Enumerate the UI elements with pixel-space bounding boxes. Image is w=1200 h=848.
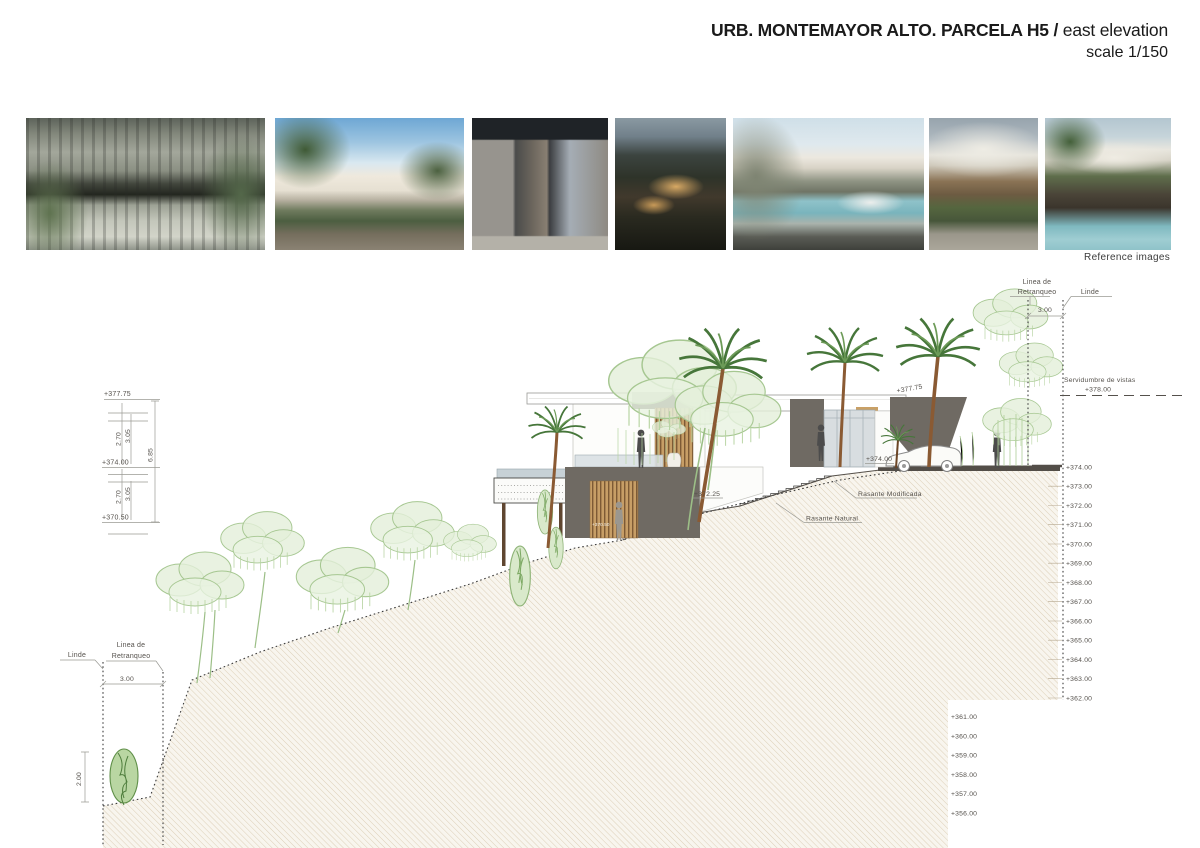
scale-label: +371.00	[1066, 522, 1092, 529]
label-mid-level: +374.00	[102, 460, 129, 467]
scale-label: +373.00	[1066, 484, 1092, 491]
dim-upper-floor: 3.05	[125, 429, 132, 443]
sketch-tree	[221, 512, 305, 571]
dim-upper-clear: 2.70	[116, 432, 123, 446]
scale-label: +366.00	[1066, 619, 1092, 626]
label-lower-level: +370.50	[592, 522, 610, 528]
dim-lower-clear: 2.70	[116, 490, 123, 504]
label-linde-bottom: Linde	[68, 652, 86, 659]
label-rasante-modificada: Rasante Modificada	[858, 491, 922, 498]
label-mid-spot: +372.25	[694, 491, 720, 498]
elevation-sheet: URB. MONTEMAYOR ALTO. PARCELA H5 / east …	[0, 0, 1200, 848]
scale-label: +370.00	[1066, 542, 1092, 549]
dim-setback-bottom: 3.00	[120, 676, 134, 683]
left-dimension-stack: +377.75 2.70 3.05 +374.00 2.70 3.05 +370…	[102, 391, 160, 534]
dim-setback: 3.00	[1038, 307, 1052, 314]
label-rasante-natural: Rasante Natural	[806, 516, 858, 523]
elevation-drawing: +370.50	[0, 0, 1200, 848]
label-linea-de: Linea de	[1023, 279, 1051, 286]
label-low-level: +370.50	[102, 515, 129, 522]
cypress-bush	[110, 749, 138, 805]
label-retranqueo-bottom: Retranqueo	[112, 653, 151, 660]
lower-scale-panel	[948, 700, 1200, 848]
sketch-tree	[296, 547, 388, 612]
label-retranqueo: Retranqueo	[1018, 289, 1057, 296]
scale-label: +374.00	[1066, 465, 1092, 472]
dim-total-height: 6.85	[148, 448, 155, 462]
servidumbre-annotation: Servidumbre de vistas +378.00	[1060, 377, 1188, 396]
sketch-tree	[156, 552, 244, 614]
boundary-shrub	[973, 289, 1048, 342]
boundary-shrub	[999, 343, 1062, 388]
label-entry-spot: +374.00	[866, 456, 892, 463]
scale-label: +369.00	[1066, 561, 1092, 568]
scale-label: +357.00	[951, 791, 977, 798]
lower-wood-slat-door	[590, 481, 638, 538]
scale-label: +364.00	[1066, 657, 1092, 664]
dim-lower-floor: 3.05	[125, 487, 132, 501]
label-servidumbre: Servidumbre de vistas	[1064, 377, 1136, 384]
scale-label: +368.00	[1066, 580, 1092, 587]
scale-label: +363.00	[1066, 676, 1092, 683]
scale-label: +372.00	[1066, 503, 1092, 510]
label-roof-spot: +377.75	[896, 384, 923, 395]
pool-box-post-left	[502, 503, 506, 566]
right-elevation-scale: +374.00 +373.00 +372.00 +371.00 +370.00 …	[1066, 465, 1092, 703]
label-linde: Linde	[1081, 289, 1099, 296]
dim-bush-height: 2.00	[76, 772, 83, 786]
scale-label: +361.00	[951, 714, 977, 721]
boundary-shrub	[983, 398, 1052, 446]
scale-label: +360.00	[951, 733, 977, 740]
cypress-tree	[549, 527, 563, 569]
scale-label: +367.00	[1066, 599, 1092, 606]
label-linea-de-bottom: Linea de	[117, 642, 145, 649]
scale-label: +365.00	[1066, 638, 1092, 645]
sketch-tree	[371, 502, 455, 561]
scale-label: +358.00	[951, 772, 977, 779]
scale-label: +356.00	[951, 810, 977, 817]
label-servidumbre-level: +378.00	[1085, 387, 1111, 394]
scale-label: +359.00	[951, 753, 977, 760]
cypress-tree	[510, 546, 531, 606]
scale-label: +362.00	[1066, 696, 1092, 703]
label-top-level: +377.75	[104, 391, 131, 398]
